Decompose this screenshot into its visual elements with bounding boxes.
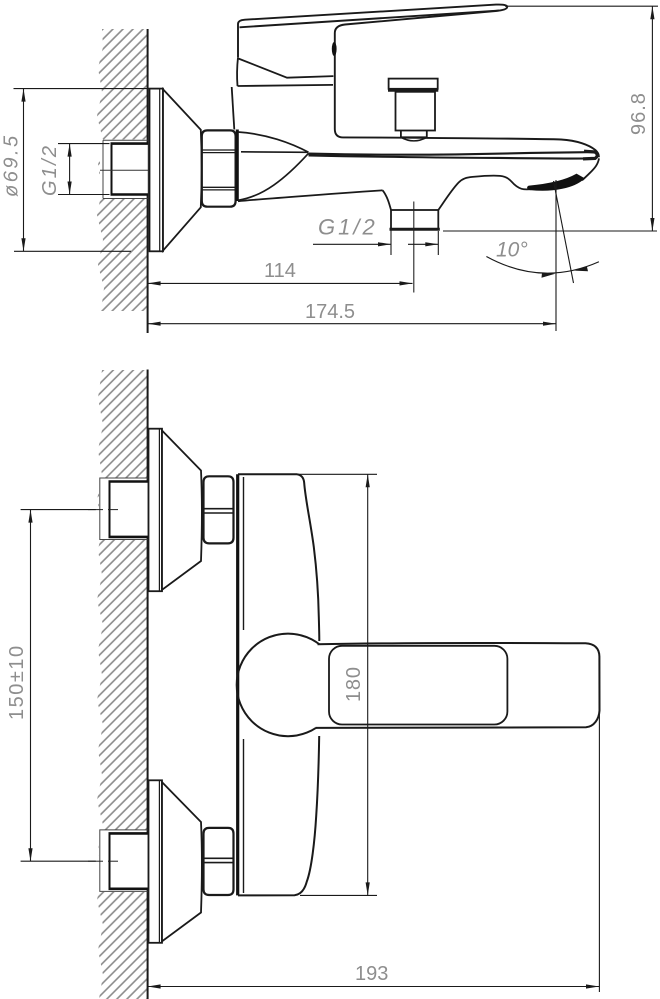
svg-text:174.5: 174.5: [305, 301, 355, 323]
svg-text:114: 114: [264, 260, 296, 282]
svg-text:G1/2: G1/2: [318, 215, 378, 240]
svg-text:193: 193: [355, 963, 388, 985]
svg-text:G1/2: G1/2: [39, 144, 61, 196]
svg-text:150±10: 150±10: [6, 644, 28, 720]
svg-text:ø69.5: ø69.5: [1, 133, 23, 197]
svg-text:10°: 10°: [496, 239, 528, 262]
svg-text:96.8: 96.8: [628, 92, 650, 135]
svg-text:180: 180: [343, 666, 365, 702]
